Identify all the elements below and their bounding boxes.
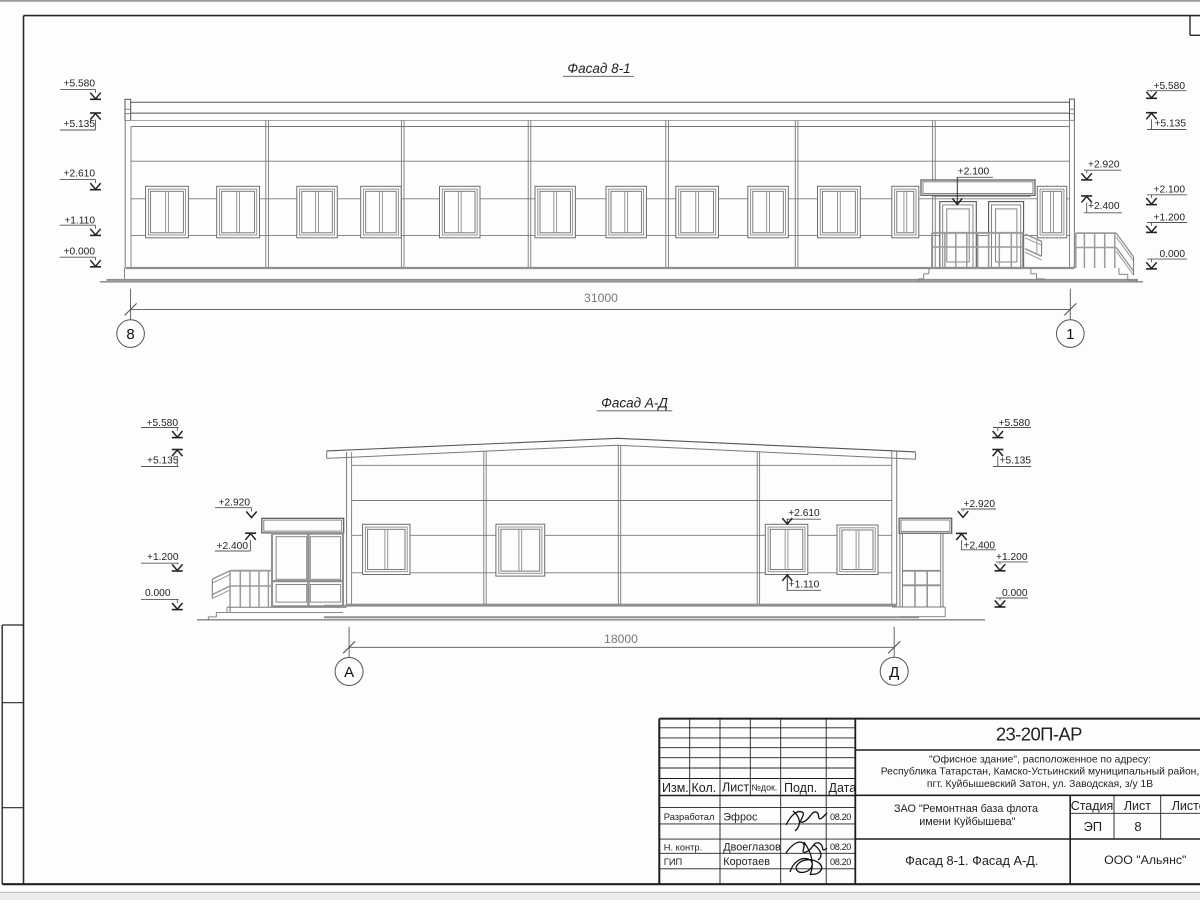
svg-text:ООО "Альянс": ООО "Альянс" (1104, 853, 1186, 867)
svg-text:+2.100: +2.100 (1154, 185, 1186, 196)
svg-text:Эфрос: Эфрос (723, 812, 758, 824)
svg-text:8: 8 (1134, 819, 1141, 834)
svg-text:Фасад 8-1: Фасад 8-1 (567, 61, 630, 76)
svg-text:+2.400: +2.400 (217, 541, 249, 552)
svg-text:+5.135: +5.135 (1000, 456, 1032, 467)
svg-text:Листов: Листов (1172, 799, 1200, 813)
svg-text:имени Куйбышева": имени Куйбышева" (919, 816, 1015, 828)
svg-text:31000: 31000 (584, 291, 618, 305)
svg-text:А: А (344, 664, 354, 681)
svg-text:+2.400: +2.400 (1088, 201, 1120, 212)
svg-text:0.000: 0.000 (1160, 249, 1186, 260)
svg-text:+5.135: +5.135 (147, 456, 179, 467)
svg-text:Фасад А-Д: Фасад А-Д (601, 396, 668, 411)
svg-text:+1.200: +1.200 (1154, 212, 1186, 223)
svg-text:+2.920: +2.920 (219, 498, 251, 509)
svg-text:ЗАО "Ремонтная база флота: ЗАО "Ремонтная база флота (894, 803, 1038, 815)
svg-text:Республика Татарстан, Камско-У: Республика Татарстан, Камско-Устьинский … (881, 766, 1199, 778)
svg-text:Двоеглазов: Двоеглазов (723, 842, 781, 854)
svg-text:Кол.: Кол. (692, 781, 717, 795)
svg-text:23-20П-АР: 23-20П-АР (996, 724, 1082, 745)
svg-text:08.20: 08.20 (830, 857, 851, 867)
svg-text:Н. контр.: Н. контр. (664, 842, 702, 852)
svg-text:+1.110: +1.110 (64, 215, 95, 226)
svg-text:+2.920: +2.920 (964, 499, 996, 510)
svg-text:08.20: 08.20 (830, 812, 851, 822)
svg-text:Разработал: Разработал (664, 812, 715, 822)
svg-text:+2.920: +2.920 (1088, 160, 1120, 171)
svg-text:08.20: 08.20 (830, 842, 851, 852)
svg-text:+1.200: +1.200 (147, 552, 179, 563)
svg-text:0.000: 0.000 (1002, 588, 1028, 599)
svg-text:Изм.: Изм. (662, 781, 689, 795)
svg-text:1: 1 (1066, 326, 1074, 343)
svg-text:Коротаев: Коротаев (723, 856, 770, 868)
svg-text:+5.135: +5.135 (1155, 119, 1187, 130)
svg-text:пгт. Куйбышевский Затон, ул. З: пгт. Куйбышевский Затон, ул. Заводская, … (927, 778, 1153, 790)
svg-text:+2.610: +2.610 (788, 508, 820, 519)
svg-text:Подп.: Подп. (784, 781, 817, 795)
svg-text:Стадия: Стадия (1071, 799, 1114, 813)
svg-text:"Офисное здание", расположенно: "Офисное здание", расположенное по адрес… (929, 754, 1151, 766)
svg-text:+2.610: +2.610 (64, 169, 96, 180)
svg-text:18000: 18000 (604, 632, 638, 646)
svg-text:+0.000: +0.000 (64, 247, 96, 258)
svg-text:Д: Д (889, 664, 899, 681)
svg-text:№док.: №док. (752, 783, 778, 793)
svg-text:+2.100: +2.100 (958, 167, 990, 178)
svg-text:8: 8 (126, 326, 134, 343)
svg-text:Лист: Лист (722, 781, 749, 795)
svg-text:+5.135: +5.135 (64, 119, 96, 130)
svg-text:Фасад 8-1. Фасад А-Д.: Фасад 8-1. Фасад А-Д. (905, 853, 1038, 868)
svg-text:ЭП: ЭП (1083, 819, 1102, 834)
svg-text:0.000: 0.000 (145, 588, 171, 599)
svg-text:+5.580: +5.580 (64, 79, 96, 90)
svg-text:+1.110: +1.110 (789, 580, 820, 591)
svg-text:+1.200: +1.200 (996, 552, 1028, 563)
svg-text:Лист: Лист (1124, 799, 1151, 813)
svg-text:ГИП: ГИП (664, 857, 682, 867)
svg-text:Дата: Дата (829, 781, 857, 795)
